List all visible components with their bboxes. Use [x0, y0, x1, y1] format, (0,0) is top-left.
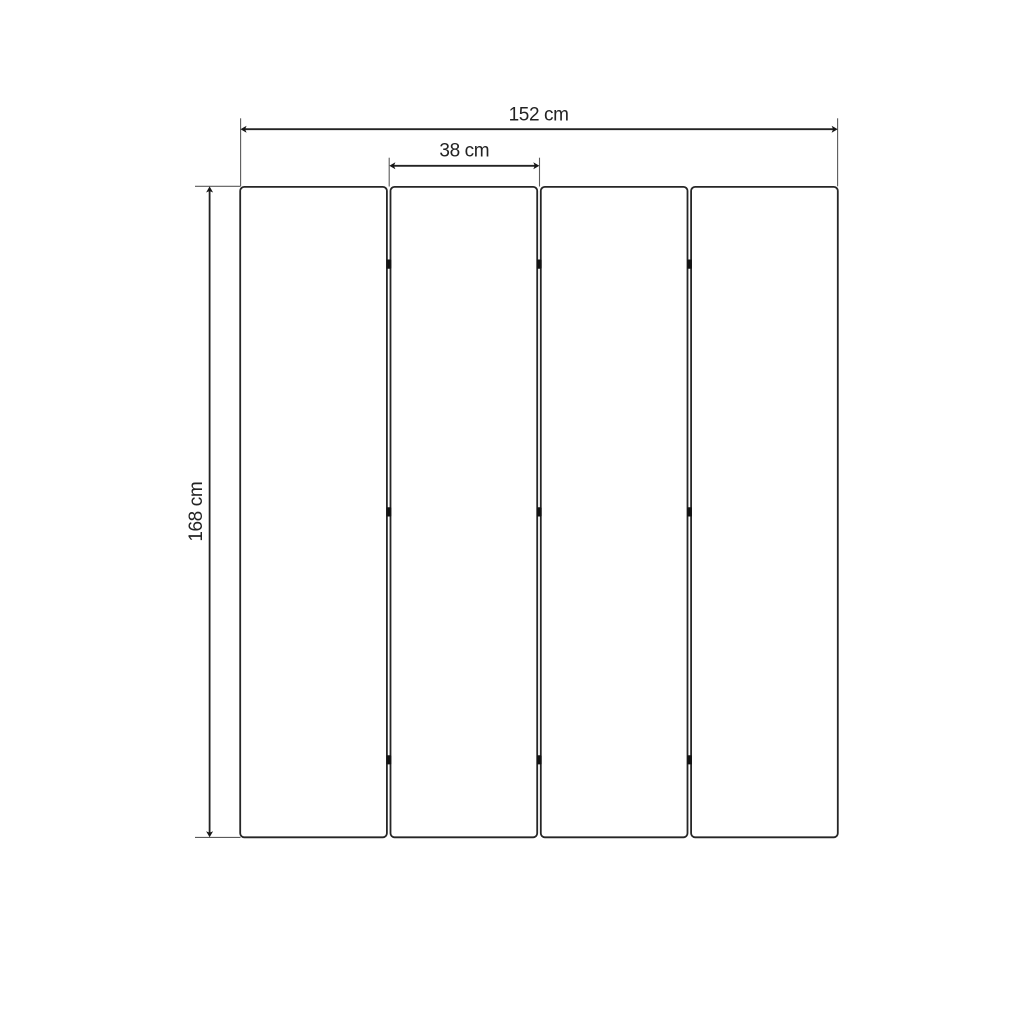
svg-text:38 cm: 38 cm	[439, 141, 489, 162]
svg-text:168 cm: 168 cm	[186, 482, 207, 542]
svg-text:152 cm: 152 cm	[509, 104, 569, 125]
